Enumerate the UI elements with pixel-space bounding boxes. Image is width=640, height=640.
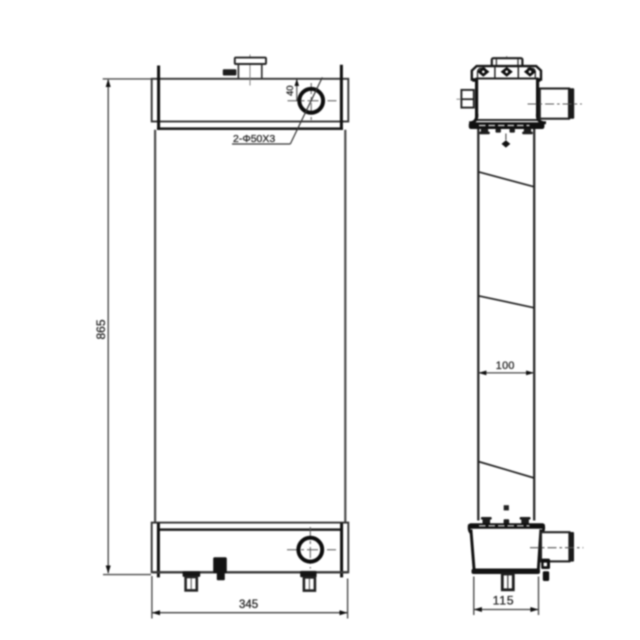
svg-text:115: 115 — [493, 593, 515, 607]
svg-text:865: 865 — [94, 319, 108, 339]
svg-text:100: 100 — [496, 360, 515, 372]
svg-text:2-Φ50X3: 2-Φ50X3 — [233, 133, 275, 145]
svg-text:40: 40 — [285, 85, 296, 96]
svg-text:345: 345 — [239, 599, 258, 611]
